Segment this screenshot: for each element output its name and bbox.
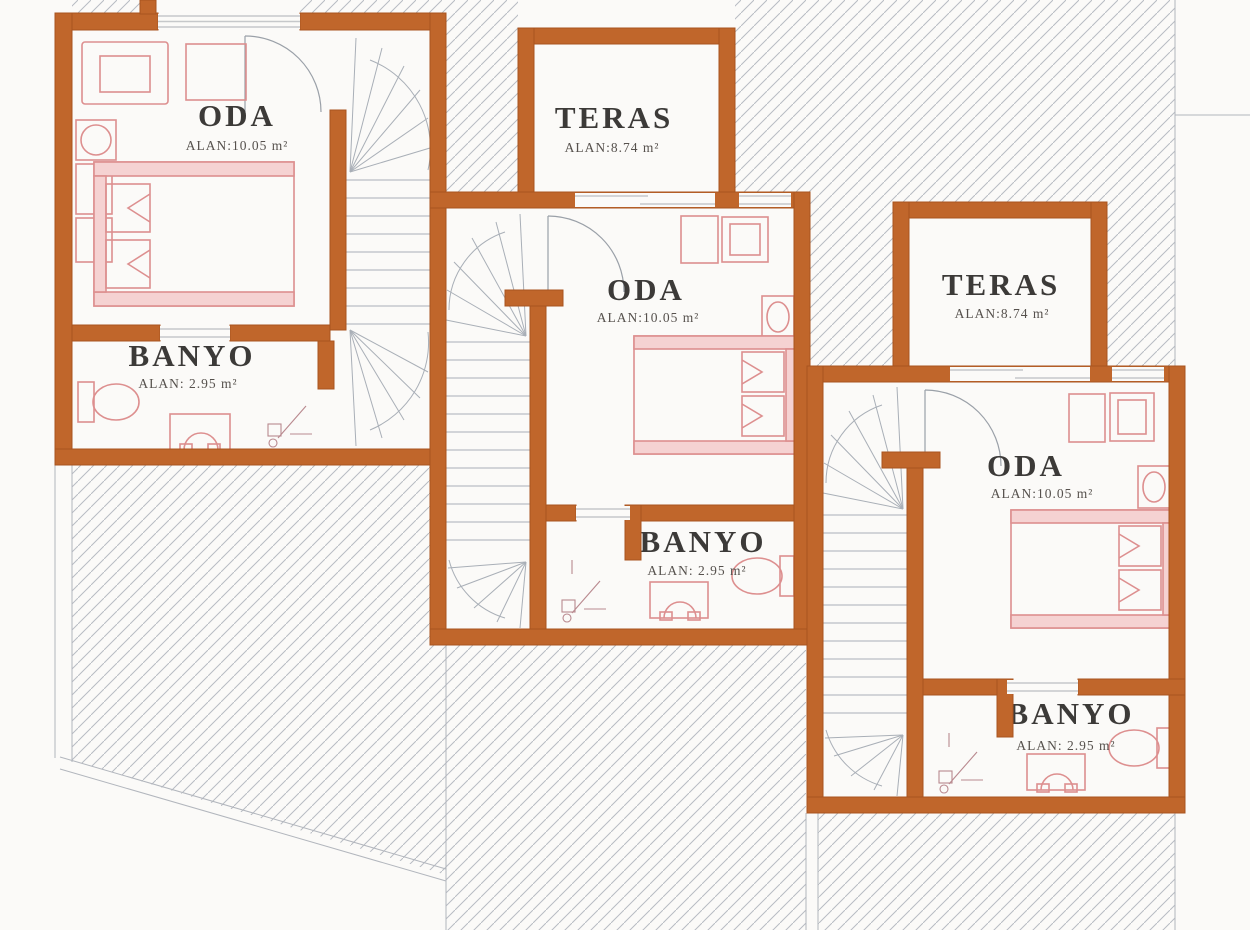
wall [55,449,446,465]
stool-symbol [76,120,116,160]
room-area-banyo-unit3: ALAN: 2.95 m² [1016,738,1115,753]
wall [807,366,823,813]
wall [719,28,735,206]
window-band [1112,367,1164,381]
room-label-teras-unit3: TERAS [942,267,1060,302]
window-band [576,506,630,520]
wall [430,629,810,645]
armchair-symbol [681,216,718,263]
side-table-top-symbol [730,224,760,255]
wall [1169,366,1185,813]
washbasin-symbol [1027,754,1085,792]
room-label-oda-unit2: ODA [607,272,685,307]
wall [518,28,735,44]
wall [630,505,794,521]
hatch-top-left-sliver [72,0,140,13]
wall [907,468,923,797]
room-area-banyo-unit1: ALAN: 2.95 m² [138,376,237,391]
unit2-spiral-stairs [446,214,530,628]
toilet-tank-symbol [78,382,94,422]
toilet-symbol [93,384,139,420]
wall [530,306,546,629]
side-table-top-symbol [1118,400,1146,434]
wall [893,202,909,375]
armchair-symbol [82,42,168,104]
room-label-banyo-unit3: BANYO [1008,696,1135,731]
unit1-furniture [76,42,294,306]
wall [72,325,160,341]
wall [923,679,1007,695]
wall [882,452,940,468]
armchair-cushion-symbol [100,56,150,92]
window-band [739,193,791,207]
wall [300,13,446,30]
wall [230,325,330,341]
shower-drain-symbol [939,733,983,793]
unit2-furniture [634,216,798,454]
sliding-door-band [575,193,715,207]
room-area-oda-unit3: ALAN:10.05 m² [991,486,1094,501]
room-label-oda-unit3: ODA [987,448,1065,483]
wall [518,28,534,206]
side-table-symbol [186,44,246,100]
toilet-symbol [1109,730,1159,766]
unit3-spiral-stairs [823,387,907,796]
room-area-oda-unit1: ALAN:10.05 m² [186,138,289,153]
wall [140,0,156,14]
floor-plan-canvas: ODA ALAN:10.05 m² BANYO ALAN: 2.95 m² [0,0,1250,930]
basin-symbol [767,302,789,332]
double-bed-symbol [634,336,798,454]
unit-1: ODA ALAN:10.05 m² BANYO ALAN: 2.95 m² [76,36,430,452]
double-bed-symbol [1011,510,1175,628]
window-band [158,14,300,29]
floor-plan-drawing: ODA ALAN:10.05 m² BANYO ALAN: 2.95 m² [0,0,1250,930]
wall [55,13,72,465]
basin-symbol [1143,472,1165,502]
shower-drain-symbol [562,560,606,622]
room-area-banyo-unit2: ALAN: 2.95 m² [647,563,746,578]
wall [546,505,576,521]
wall [1078,679,1185,695]
room-area-teras-unit2: ALAN:8.74 m² [565,140,660,155]
hatch-lower-left-region [72,465,446,875]
unit1-bath-fixtures [78,382,312,452]
washbasin-symbol [170,414,230,452]
room-area-oda-unit2: ALAN:10.05 m² [597,310,700,325]
wall [330,110,346,330]
wall [318,341,334,389]
unit3-furniture [1011,393,1175,628]
unit1-spiral-stairs [346,38,430,446]
room-area-teras-unit3: ALAN:8.74 m² [955,306,1050,321]
wall [893,202,1107,218]
room-label-oda-unit1: ODA [198,98,276,133]
hatch-below-unit3 [818,813,1175,930]
room-label-banyo-unit1: BANYO [129,338,256,373]
wall [1091,202,1107,375]
sliding-door-band [950,367,1090,381]
window-band [160,326,230,340]
stool-top-symbol [81,125,111,155]
room-label-banyo-unit2: BANYO [640,524,767,559]
washbasin-symbol [650,582,708,620]
hatch-top-sliver [300,0,446,13]
room-label-teras-unit2: TERAS [555,100,673,135]
hatch-below-unit2 [446,645,806,930]
armchair-symbol [1069,394,1105,442]
window-band [1007,680,1078,694]
shower-drain-symbol [268,406,312,447]
double-bed-symbol [94,162,294,306]
wall [430,13,446,645]
wall [807,797,1185,813]
hatch-strip-between-unit1-unit2 [446,0,518,192]
wall [505,290,563,306]
